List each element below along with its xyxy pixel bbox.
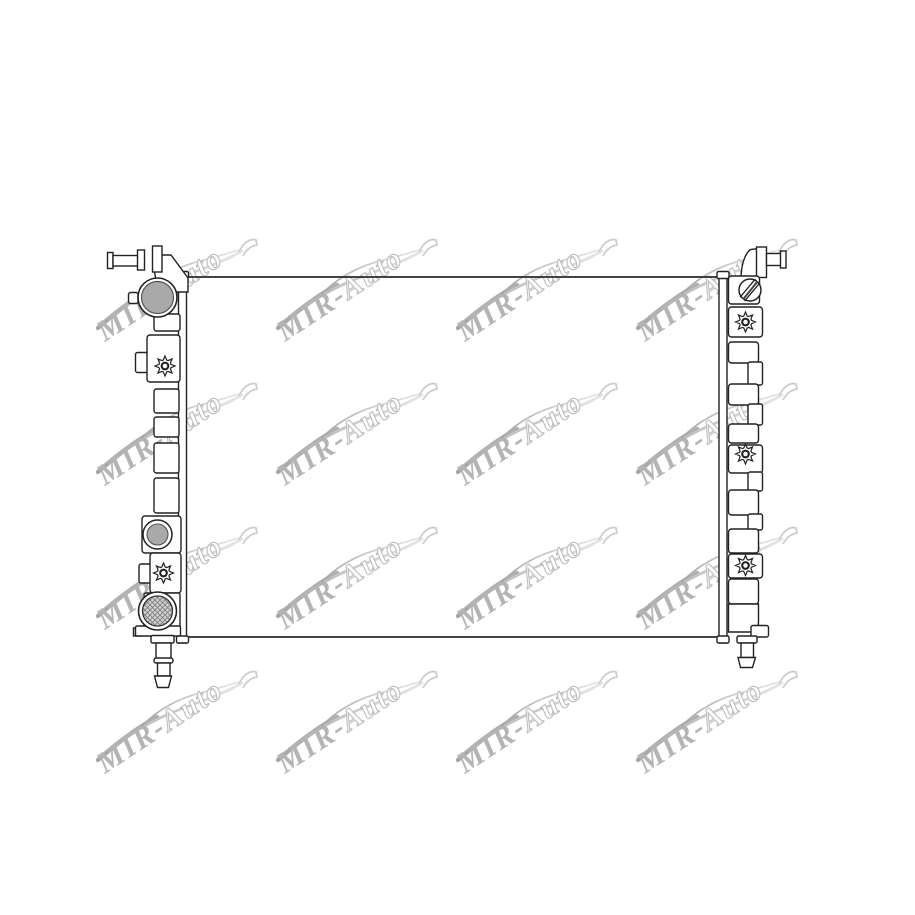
mid-port-icon xyxy=(143,520,172,549)
watermark-tile xyxy=(90,672,257,781)
radiator-line-art-svg: MIR-Auto xyxy=(0,0,915,915)
star-bolt-icon xyxy=(736,556,756,576)
right-tank xyxy=(729,247,787,668)
star-bolt-icon xyxy=(154,563,174,583)
watermark-tile xyxy=(630,384,797,493)
watermark-tile xyxy=(450,240,617,349)
hatched-drain-port-icon xyxy=(139,592,177,630)
product-image-canvas: MIR-Auto xyxy=(0,0,915,915)
mounting-tab-lower xyxy=(139,564,151,583)
tank-foot xyxy=(751,626,769,638)
screw-plug-icon xyxy=(739,279,761,301)
star-bolt-icon xyxy=(736,444,756,464)
star-bolt-icon xyxy=(736,312,756,332)
watermark-tile xyxy=(450,384,617,493)
watermark-tile xyxy=(450,672,617,781)
watermark-tile xyxy=(270,240,437,349)
drain-fitting-right xyxy=(737,636,757,668)
watermark-tile xyxy=(270,672,437,781)
watermark-tile xyxy=(630,528,797,637)
watermark-tile xyxy=(270,384,437,493)
watermark-tile xyxy=(630,672,797,781)
right-side-plate xyxy=(717,272,729,644)
watermark-tile xyxy=(450,528,617,637)
drain-fitting-left xyxy=(151,636,174,688)
watermark-tile xyxy=(270,528,437,637)
star-bolt-icon xyxy=(155,356,175,376)
watermark-layer xyxy=(90,240,797,781)
